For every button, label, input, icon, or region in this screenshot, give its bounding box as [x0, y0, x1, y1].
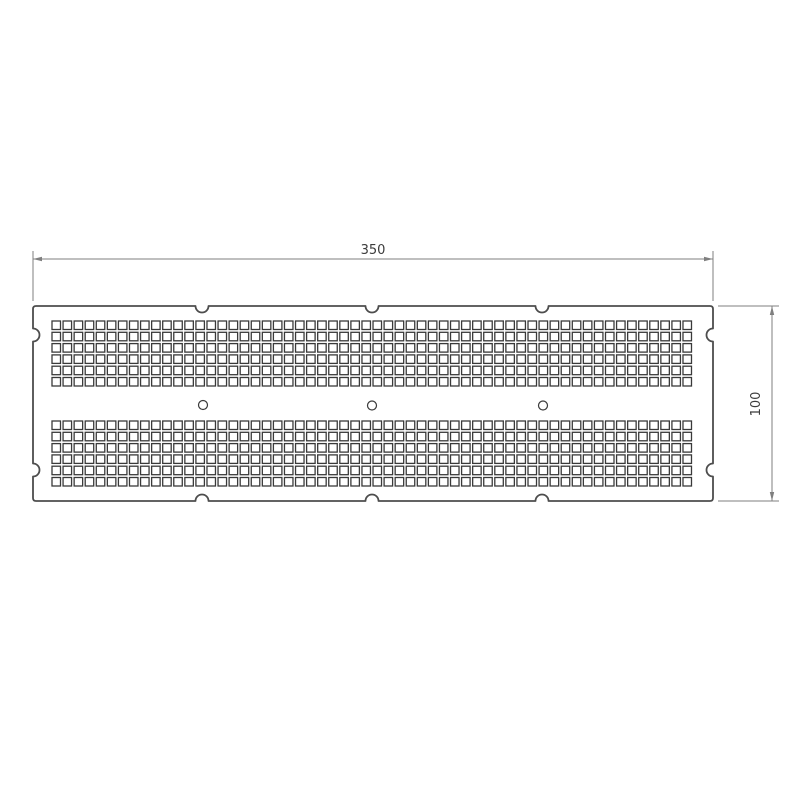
top-dimension	[33, 251, 713, 301]
mounting-holes	[199, 401, 548, 411]
technical-drawing-canvas: 350 100	[0, 0, 800, 800]
width-dimension-label: 350	[361, 243, 386, 258]
perforated-plate-drawing: 350 100	[0, 0, 800, 800]
height-dimension-label: 100	[749, 392, 764, 417]
perforation-grid	[52, 321, 691, 486]
